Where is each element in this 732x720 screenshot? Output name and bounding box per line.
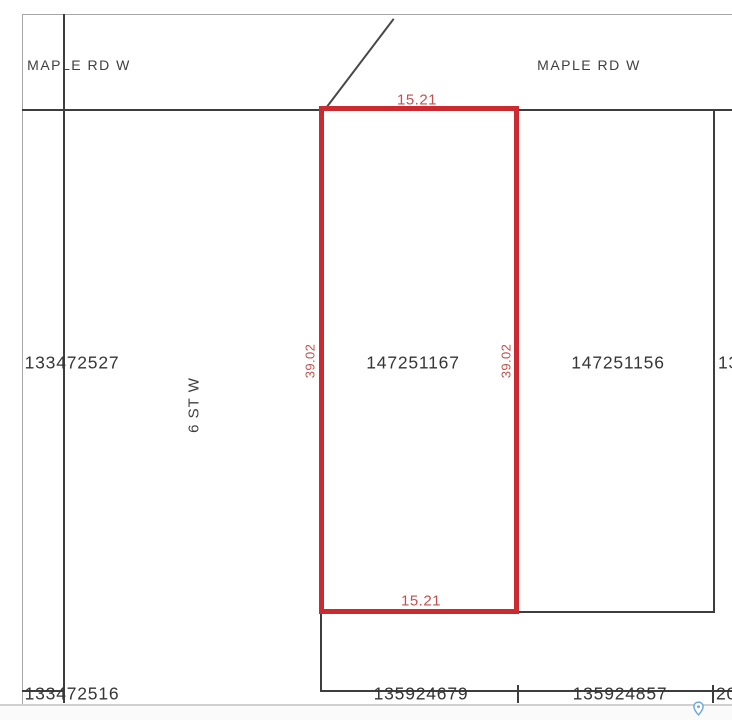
map-border-bottom [0, 704, 732, 706]
street-label-maple-rd-w-right: MAPLE RD W [537, 58, 641, 72]
boundary-diagonal [324, 18, 395, 110]
dimension-right: 39.02 [500, 344, 513, 379]
parcel-label-south-center: 135924679 [374, 685, 469, 703]
parcel-label-east-clipped: 13 [718, 354, 732, 372]
boundary-east-vertical [713, 110, 715, 613]
street-label-maple-rd-w-left: MAPLE RD W [27, 58, 131, 72]
map-border-top [22, 14, 732, 15]
dimension-bottom: 15.21 [401, 594, 441, 609]
boundary-tick-south-center [517, 685, 519, 703]
parcel-label-east: 147251156 [571, 354, 665, 372]
map-bottom-margin [0, 706, 732, 720]
parcel-label-selected: 147251167 [366, 354, 460, 372]
parcel-label-south-clipped: 20 [716, 685, 732, 703]
dimension-top: 15.21 [397, 93, 437, 108]
parcel-label-south-east: 135924857 [573, 685, 668, 703]
plat-map-canvas[interactable]: MAPLE RD W MAPLE RD W 6 ST W 15.21 15.21… [0, 0, 732, 720]
boundary-tick-south-east [712, 685, 714, 703]
map-border-left [22, 14, 23, 704]
parcel-label-south-west: 133472516 [25, 685, 120, 703]
boundary-below-selected [320, 613, 322, 692]
street-label-6-st-w: 6 ST W [187, 377, 202, 433]
parcel-label-west: 133472527 [25, 354, 120, 372]
map-pin-icon[interactable] [693, 701, 704, 716]
dimension-left: 39.02 [304, 344, 317, 379]
boundary-south-of-parcel [517, 611, 715, 613]
